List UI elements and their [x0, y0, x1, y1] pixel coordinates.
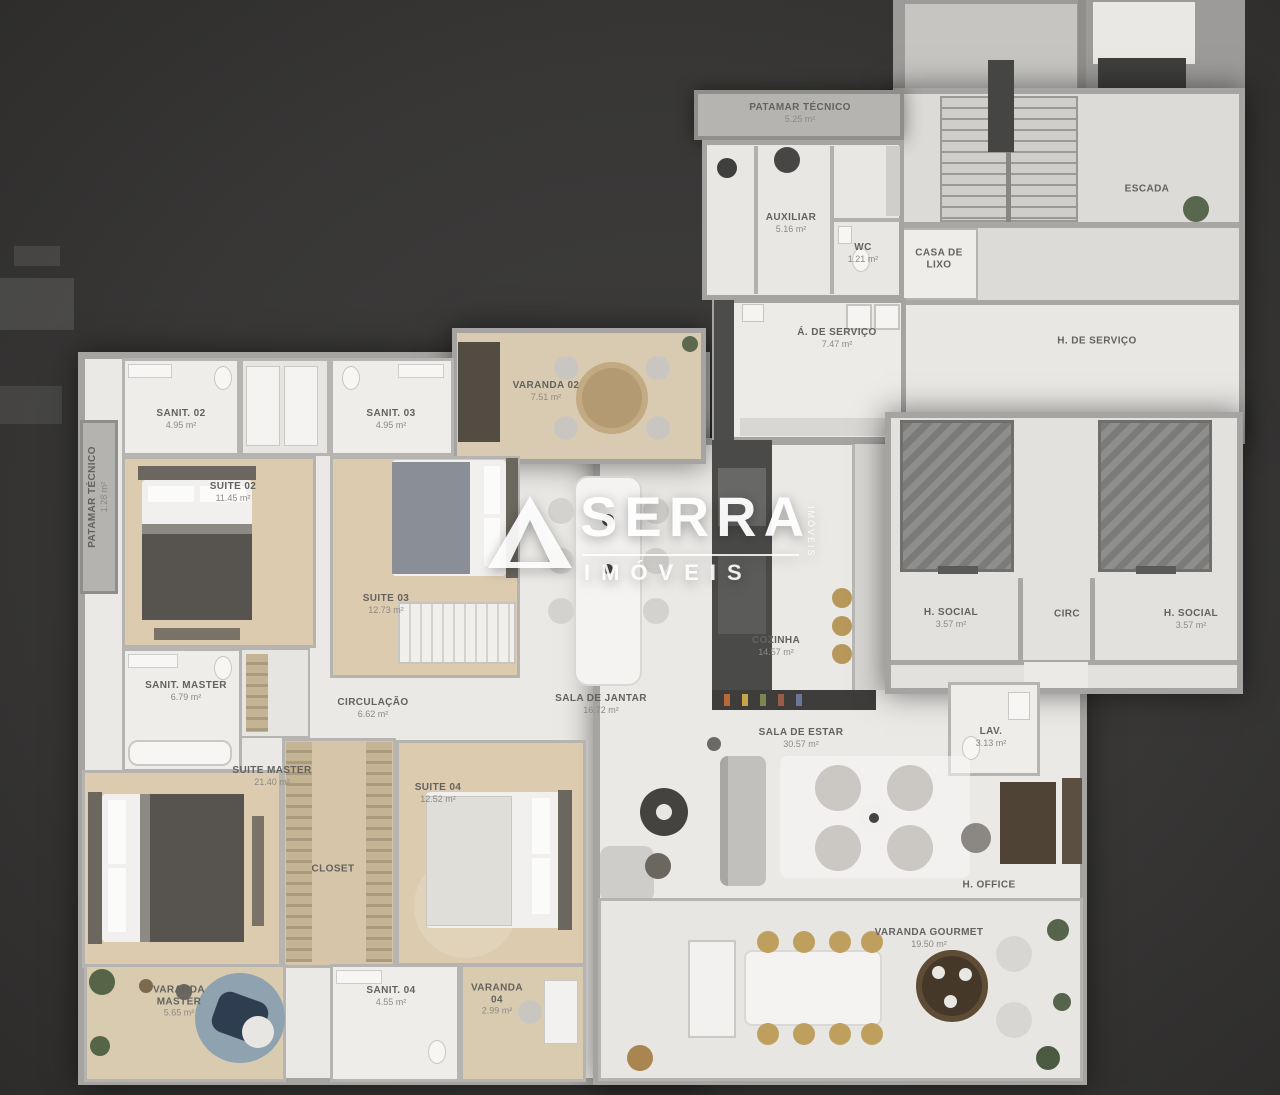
upper-room: [1093, 2, 1195, 64]
room-name: SANIT. MASTER: [145, 680, 227, 692]
toilet-icon: [428, 1040, 446, 1064]
duvet: [140, 794, 244, 942]
grill-table: [916, 950, 988, 1022]
edge-fragment: [14, 246, 60, 266]
room-name: SUITE 03: [363, 593, 410, 605]
dumbwaiter: [988, 60, 1014, 152]
room-label-hall-de-servico: H. DE SERVIÇO: [1057, 335, 1136, 347]
room-name: LAV.: [976, 726, 1007, 738]
vanity-icon: [128, 654, 178, 668]
bar-stool-icon: [832, 588, 852, 608]
dryer-icon: [874, 304, 900, 330]
room-name: SANIT. 03: [366, 408, 415, 420]
room-name: H. OFFICE: [962, 879, 1015, 891]
wall: [754, 146, 758, 294]
vanity-icon: [336, 970, 382, 984]
room-label-sanit-02: SANIT. 024.95 m²: [156, 408, 205, 430]
room-area: 12.73 m²: [363, 605, 410, 615]
room-name: VARANDA 02: [513, 380, 580, 392]
plate-icon: [656, 804, 672, 820]
gourmet-table: [744, 950, 882, 1026]
chair-icon: [554, 416, 578, 440]
suite-master-headboard: [88, 792, 102, 944]
vanity-icon: [128, 364, 172, 378]
decor-icon: [869, 813, 879, 823]
plate-icon: [944, 995, 957, 1008]
bar-stool-icon: [832, 644, 852, 664]
room-label-varanda-02: VARANDA 027.51 m²: [513, 380, 580, 402]
room-label-suite-03: SUITE 0312.73 m²: [363, 593, 410, 615]
chair-icon: [757, 931, 779, 953]
room-name: Á. DE SERVIÇO: [797, 327, 876, 339]
room-label-circulacao: CIRCULAÇÃO6.62 m²: [337, 697, 408, 719]
watermark-brand: SERRA: [580, 484, 811, 549]
serra-logo-icon: [488, 496, 572, 568]
chair-icon: [793, 1023, 815, 1045]
room-name: WC: [848, 242, 879, 254]
plant-icon: [89, 969, 115, 995]
room-name: SUITE 02: [210, 481, 257, 493]
elevator-door: [1136, 566, 1176, 574]
room-area: 5.25 m²: [749, 114, 851, 124]
room-area: 3.57 m²: [924, 619, 978, 629]
room-area: 30.57 m²: [759, 739, 844, 749]
room-label-area-de-servico: Á. DE SERVIÇO7.47 m²: [797, 327, 876, 349]
floor-plan-image: PATAMAR TÉCNICO5.25 m²AUXILIAR5.16 m²WC1…: [0, 0, 1280, 1095]
duvet-fold: [140, 794, 150, 942]
room-name: CIRC: [1054, 608, 1080, 620]
sofa: [720, 756, 766, 886]
chair-icon: [829, 1023, 851, 1045]
room-label-lav: LAV.3.13 m²: [976, 726, 1007, 748]
duvet-fold: [142, 524, 252, 534]
room-name: SALA DE ESTAR: [759, 727, 844, 739]
chair-icon: [757, 1023, 779, 1045]
room-area: 14.57 m²: [752, 647, 800, 657]
pillow-icon: [532, 858, 550, 914]
bench: [154, 628, 240, 640]
elevator-shaft-right: [1098, 420, 1212, 572]
room-name: CLOSET: [312, 863, 355, 875]
duvet: [426, 796, 512, 926]
room-name: SANIT. 04: [366, 985, 415, 997]
room-area: 1.28 m²: [99, 446, 109, 548]
room-area: 4.55 m²: [366, 997, 415, 1007]
room-name: PATAMAR TÉCNICO: [749, 102, 851, 114]
room-name: AUXILIAR: [766, 212, 816, 224]
room-label-h-social-esq: H. SOCIAL3.57 m²: [924, 607, 978, 629]
wall: [834, 218, 900, 222]
chair-icon: [861, 1023, 883, 1045]
chair-icon: [554, 356, 578, 380]
round-table-icon: [576, 362, 648, 434]
wardrobe-icon: [284, 366, 318, 446]
plant-icon: [1036, 1046, 1060, 1070]
room-area: 7.51 m²: [513, 392, 580, 402]
room-area: 2.99 m²: [465, 1005, 529, 1015]
room-area: 4.95 m²: [156, 420, 205, 430]
watermark: SERRA IMÓVEIS IMÓVEIS: [488, 490, 833, 602]
room-area: 6.62 m²: [337, 709, 408, 719]
plant-icon: [1047, 919, 1069, 941]
duvet: [142, 524, 252, 620]
edge-fragment: [0, 278, 74, 330]
plate-icon: [932, 966, 945, 979]
room-label-circ: CIRC: [1054, 608, 1080, 620]
pillow-icon: [108, 800, 126, 864]
room-label-varanda-04: VARANDA 042.99 m²: [465, 982, 529, 1015]
shelf: [886, 146, 900, 216]
watermark-side-text: IMÓVEIS: [806, 506, 816, 558]
counter: [740, 418, 900, 436]
room-label-sanit-03: SANIT. 034.95 m²: [366, 408, 415, 430]
pouf-icon: [815, 765, 861, 811]
kitchen-shelf: [712, 690, 876, 710]
duvet: [392, 462, 470, 574]
office-chair-icon: [961, 823, 991, 853]
room-name: SALA DE JANTAR: [555, 693, 647, 705]
room-area: 21.40 m²: [232, 777, 311, 787]
room-label-sala-de-estar: SALA DE ESTAR30.57 m²: [759, 727, 844, 749]
edge-fragment: [0, 386, 62, 424]
room-label-sanit-04: SANIT. 044.55 m²: [366, 985, 415, 1007]
room-label-h-office: H. OFFICE: [962, 879, 1015, 891]
room-label-varanda-gourmet: VARANDA GOURMET19.50 m²: [875, 927, 984, 949]
room-area: 4.95 m²: [366, 420, 415, 430]
tall-cabinet: [714, 300, 734, 440]
room-label-sanit-master: SANIT. MASTER6.79 m²: [145, 680, 227, 702]
plate-icon: [959, 968, 972, 981]
plant-icon: [1053, 993, 1071, 1011]
shelf-item: [742, 694, 748, 706]
upper-dark-box: [1098, 58, 1186, 92]
toilet-icon: [342, 366, 360, 390]
room-area: 5.16 m²: [766, 224, 816, 234]
side-table-icon: [645, 853, 671, 879]
lounge-chair-icon: [996, 936, 1032, 972]
pot-icon: [627, 1045, 653, 1071]
sideboard: [458, 342, 500, 442]
room-name: VARANDA GOURMET: [875, 927, 984, 939]
shelf-item: [760, 694, 766, 706]
room-name: H. SOCIAL: [1164, 608, 1218, 620]
room-label-h-social-dir: H. SOCIAL3.57 m²: [1164, 608, 1218, 630]
room-label-varanda-master: VARANDA MASTER5.65 m²: [133, 984, 225, 1017]
suite-04-headboard: [558, 790, 572, 930]
chair-icon: [829, 931, 851, 953]
room-label-suite-master: SUITE MASTER21.40 m²: [232, 765, 311, 787]
lounge-chair-icon: [996, 1002, 1032, 1038]
room-label-escada: ESCADA: [1125, 183, 1170, 195]
wall: [1078, 0, 1086, 92]
room-area: 5.65 m²: [133, 1007, 225, 1017]
shelving: [246, 654, 268, 732]
tank-icon: [742, 304, 764, 322]
room-name: VARANDA 04: [465, 982, 529, 1005]
gourmet-cabinet: [688, 940, 736, 1038]
shelf-item: [778, 694, 784, 706]
bench: [252, 816, 264, 926]
armchair-icon: [600, 846, 654, 902]
room-name: H. DE SERVIÇO: [1057, 335, 1136, 347]
room-area: 3.57 m²: [1164, 620, 1218, 630]
room-name: CIRCULAÇÃO: [337, 697, 408, 709]
toilet-icon: [214, 366, 232, 390]
suite-02-headboard: [138, 466, 256, 480]
room-label-casa-de-lixo: CASA DE LIXO: [910, 248, 968, 271]
room-area: 11.45 m²: [210, 493, 257, 503]
toilet-icon: [214, 656, 232, 680]
office-shelf: [1062, 778, 1082, 864]
room-label-patamar-tecnico-left: PATAMAR TÉCNICO1.28 m²: [87, 446, 109, 548]
desk-icon: [544, 980, 578, 1044]
room-area: 7.47 m²: [797, 339, 876, 349]
room-label-suite-04: SUITE 0412.52 m²: [415, 782, 462, 804]
side-table-icon: [707, 737, 721, 751]
room-label-suite-02: SUITE 0211.45 m²: [210, 481, 257, 503]
room-name: SANIT. 02: [156, 408, 205, 420]
chair-icon: [646, 356, 670, 380]
room-name: SUITE MASTER: [232, 765, 311, 777]
wall: [1018, 578, 1023, 660]
wardrobe-icon: [246, 366, 280, 446]
room-area: 19.50 m²: [875, 939, 984, 949]
room-name: SUITE 04: [415, 782, 462, 794]
pouf-icon: [815, 825, 861, 871]
bathtub-icon: [128, 740, 232, 766]
room-area: 1.21 m²: [848, 254, 879, 264]
watermark-sub: IMÓVEIS: [584, 560, 753, 586]
wall: [1090, 578, 1095, 660]
room-name: CASA DE LIXO: [910, 248, 968, 271]
bar-counter: [852, 444, 886, 690]
room-label-patamar-tecnico-top: PATAMAR TÉCNICO5.25 m²: [749, 102, 851, 124]
watermark-rule: [583, 554, 799, 556]
office-desk: [1000, 782, 1056, 864]
chair-icon: [793, 931, 815, 953]
room-name: H. SOCIAL: [924, 607, 978, 619]
room-name: PATAMAR TÉCNICO: [87, 446, 99, 548]
room-name: COZINHA: [752, 635, 800, 647]
pillow-icon: [108, 868, 126, 932]
vase-icon: [774, 147, 800, 173]
pillow-icon: [148, 486, 194, 502]
room-name: ESCADA: [1125, 183, 1170, 195]
plant-icon: [682, 336, 698, 352]
sink-icon: [1008, 692, 1030, 720]
vase-icon: [717, 158, 737, 178]
room-label-auxiliar: AUXILIAR5.16 m²: [766, 212, 816, 234]
suite-03-wardrobe: [398, 602, 516, 664]
chair-icon: [646, 416, 670, 440]
room-name: VARANDA MASTER: [133, 984, 225, 1007]
room-area: 16.72 m²: [555, 705, 647, 715]
pillow-icon: [532, 798, 550, 854]
elevator-door: [938, 566, 978, 574]
shelf-item: [724, 694, 730, 706]
room-label-cozinha: COZINHA14.57 m²: [752, 635, 800, 657]
room-area: 6.79 m²: [145, 692, 227, 702]
vanity-icon: [398, 364, 444, 378]
pouf-icon: [887, 765, 933, 811]
plant-icon: [1183, 196, 1209, 222]
room-area: 12.52 m²: [415, 794, 462, 804]
pouf-icon: [887, 825, 933, 871]
room-label-closet: CLOSET: [312, 863, 355, 875]
room-label-wc: WC1.21 m²: [848, 242, 879, 264]
bar-stool-icon: [832, 616, 852, 636]
closet-shelves-right: [366, 742, 392, 962]
plant-icon: [90, 1036, 110, 1056]
room-area: 3.13 m²: [976, 738, 1007, 748]
elevator-shaft-left: [900, 420, 1014, 572]
shelf-item: [796, 694, 802, 706]
room-label-sala-de-jantar: SALA DE JANTAR16.72 m²: [555, 693, 647, 715]
armchair-icon: [242, 1016, 274, 1048]
